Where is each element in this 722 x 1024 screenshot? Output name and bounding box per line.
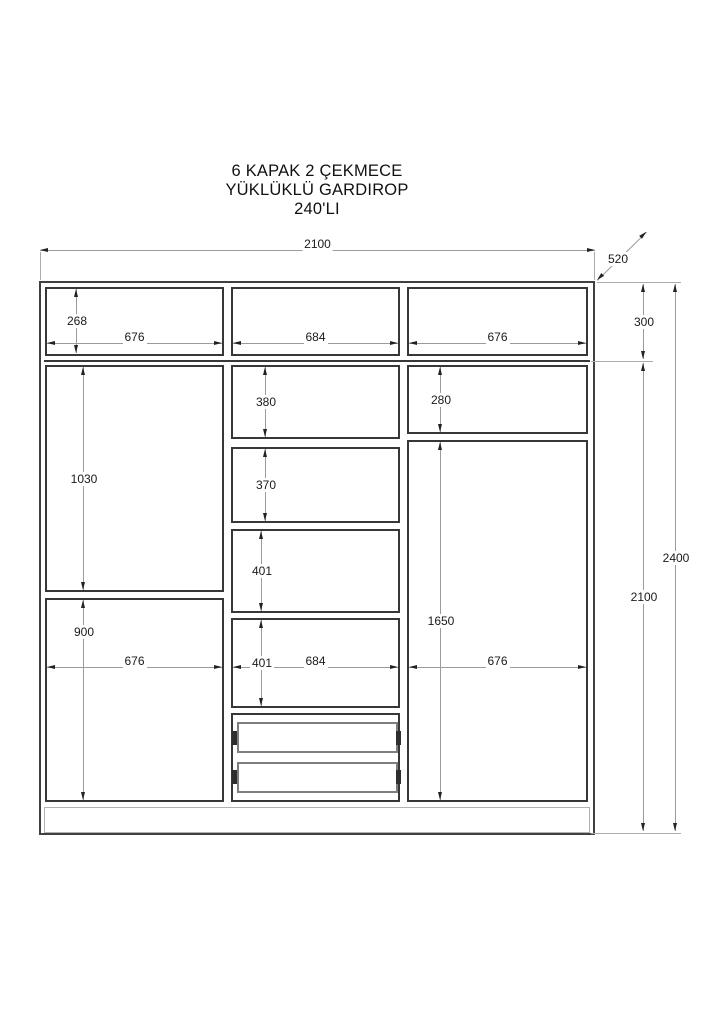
ext-line-right-bottom: [591, 833, 681, 834]
dim-total-width: 2100: [40, 250, 595, 251]
dim-right-door-height: 1650: [440, 442, 441, 800]
dim-shelf1-height-label: 380: [254, 395, 278, 409]
dim-top-section-height-label: 300: [632, 315, 656, 329]
ext-line-right-upper: [597, 282, 681, 283]
dim-right-door-height-label: 1650: [426, 614, 457, 628]
dim-body-height-label: 2100: [629, 590, 660, 604]
dim-left-lower-door-height: 900: [83, 600, 84, 800]
drawing-title: 6 KAPAK 2 ÇEKMECE YÜKLÜKLÜ GARDIROP 240'…: [107, 162, 527, 219]
drawer-2-right-handle: [396, 770, 401, 784]
drawer-1-left-handle: [232, 731, 237, 745]
dim-top-left-door-width-label: 676: [122, 330, 146, 344]
dim-left-upper-door-height-label: 1030: [69, 472, 100, 486]
top-door-center: [231, 287, 400, 356]
drawer-1: [237, 722, 398, 753]
dim-left-column-width-label: 676: [122, 654, 146, 668]
dim-top-left-door-height-label: 268: [65, 314, 89, 328]
drawer-2-left-handle: [232, 770, 237, 784]
top-door-right: [407, 287, 588, 356]
dim-top-section-height: 300: [643, 284, 644, 359]
dim-top-center-door-width: 684: [233, 343, 398, 344]
dim-right-top-shelf-height-label: 280: [429, 393, 453, 407]
dim-top-center-door-width-label: 684: [303, 330, 327, 344]
dim-shelf2-height: 370: [265, 449, 266, 521]
dim-right-top-shelf-height: 280: [440, 367, 441, 432]
dim-body-height: 2100: [643, 363, 644, 831]
title-line-2: YÜKLÜKLÜ GARDIROP: [107, 181, 527, 200]
dim-left-column-width: 676: [47, 667, 222, 668]
drawing-page: 6 KAPAK 2 ÇEKMECE YÜKLÜKLÜ GARDIROP 240'…: [0, 0, 722, 1024]
dim-shelf2-height-label: 370: [254, 478, 278, 492]
dim-top-right-door-width-label: 676: [485, 330, 509, 344]
ext-line-top-right: [594, 252, 595, 280]
dim-right-column-width-label: 676: [485, 654, 509, 668]
title-line-3: 240'LI: [107, 200, 527, 219]
dim-total-height: 2400: [675, 284, 676, 831]
dim-shelf4-height: 401: [261, 620, 262, 706]
dim-right-column-width: 676: [409, 667, 586, 668]
dim-shelf3-height: 401: [261, 531, 262, 611]
title-line-1: 6 KAPAK 2 ÇEKMECE: [107, 162, 527, 181]
dim-top-right-door-width: 676: [409, 343, 586, 344]
dim-total-width-label: 2100: [302, 237, 333, 251]
ext-line-top-left: [40, 252, 41, 280]
dim-middle-column-width-label: 684: [303, 654, 327, 668]
dim-total-height-label: 2400: [661, 551, 692, 565]
plinth-base: [44, 807, 590, 833]
drawer-2: [237, 762, 398, 793]
ext-line-right-middle: [591, 361, 653, 362]
drawer-1-right-handle: [396, 731, 401, 745]
dim-depth-label: 520: [606, 252, 630, 266]
dim-left-lower-door-height-label: 900: [72, 625, 96, 639]
dim-shelf1-height: 380: [265, 367, 266, 437]
dim-shelf3-height-label: 401: [250, 564, 274, 578]
top-section-divider: [44, 360, 590, 362]
dim-top-left-door-width: 676: [47, 343, 222, 344]
dim-shelf4-height-label: 401: [250, 656, 274, 670]
dim-left-upper-door-height: 1030: [83, 367, 84, 590]
